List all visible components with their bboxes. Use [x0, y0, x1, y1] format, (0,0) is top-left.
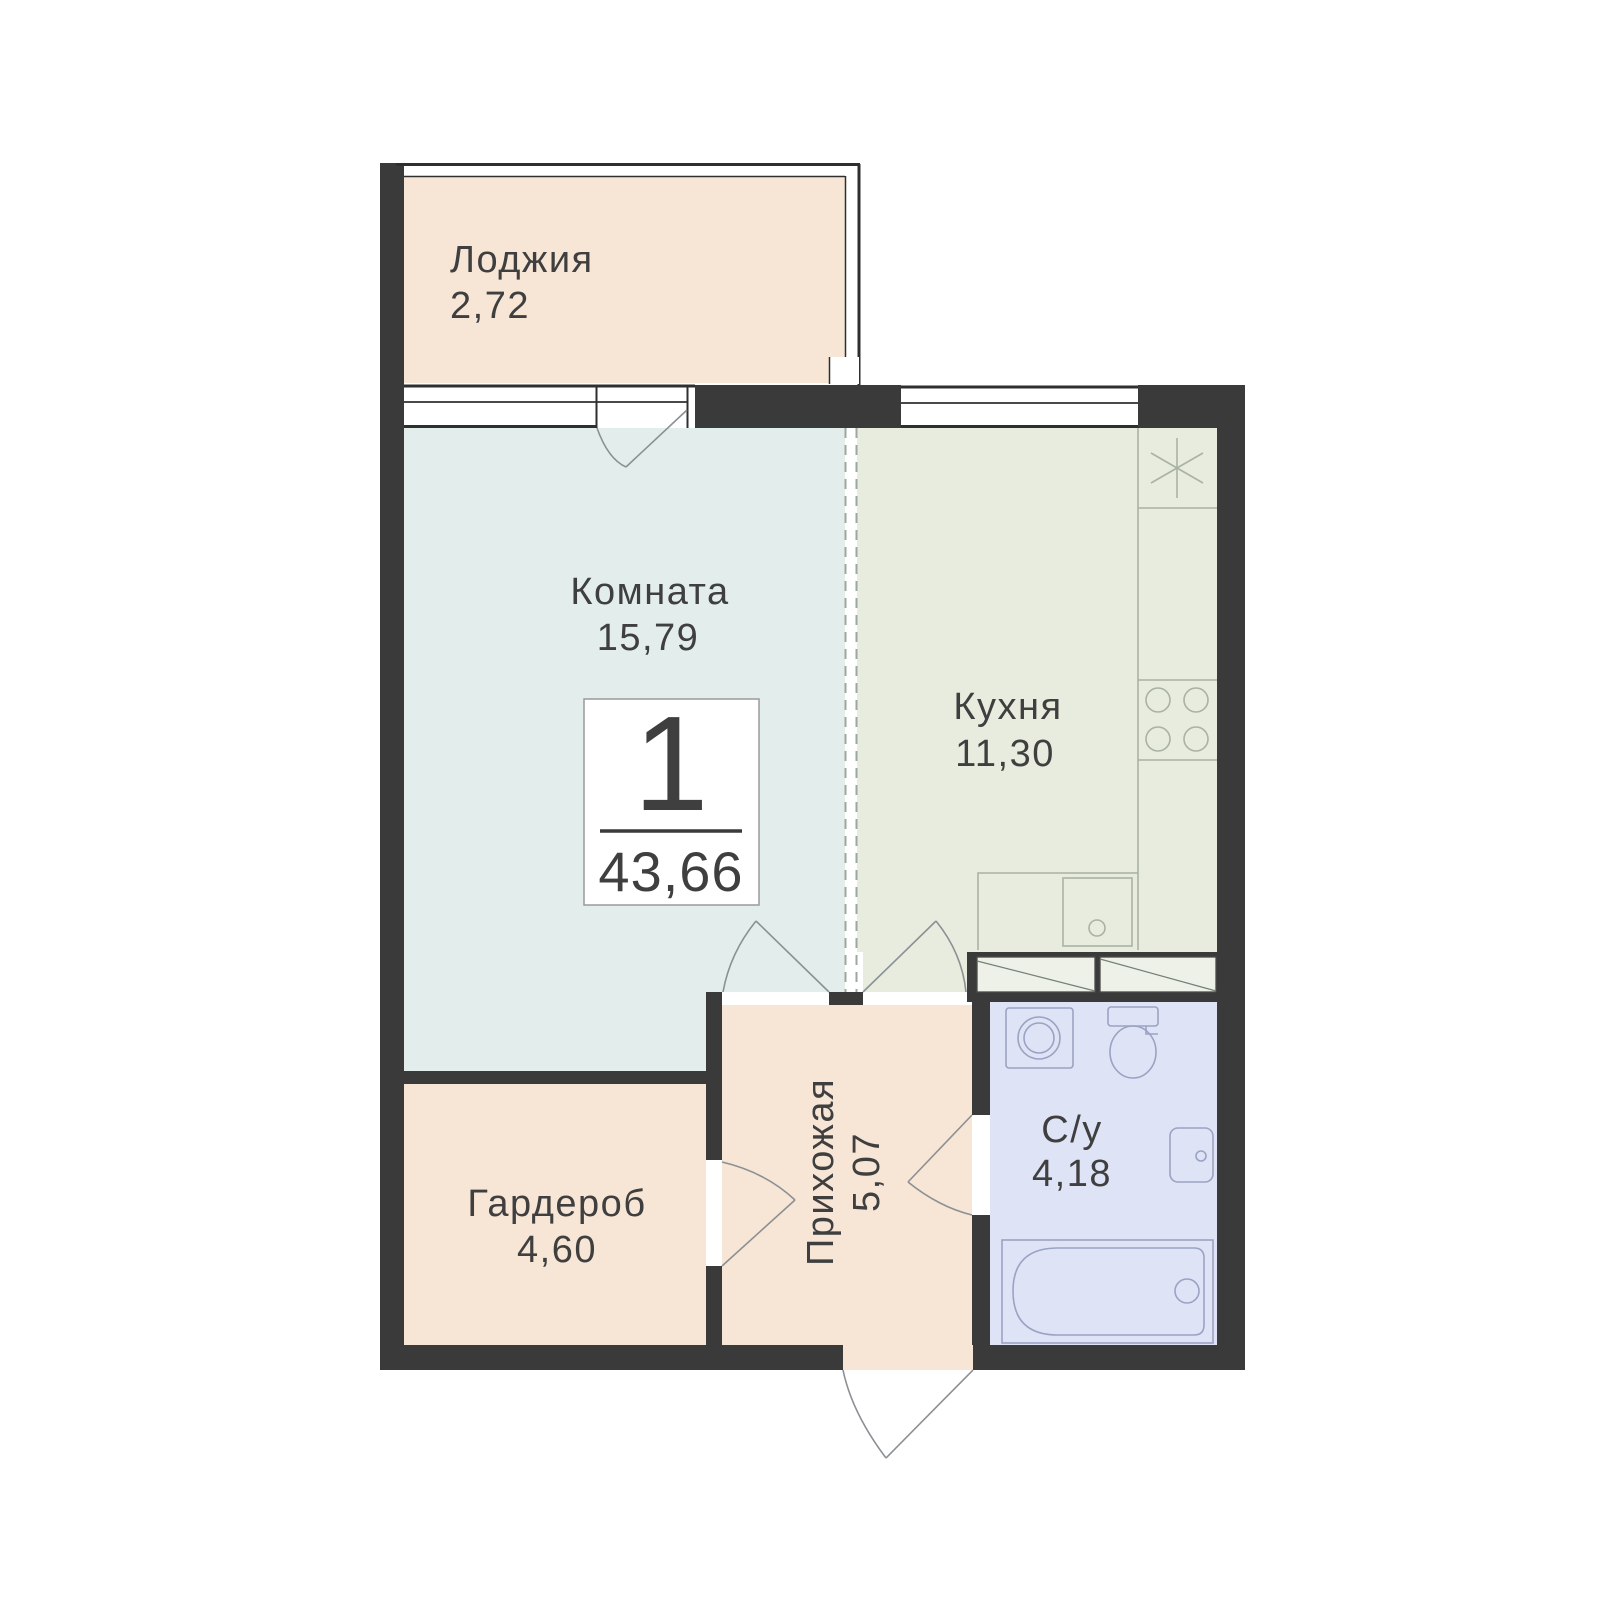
zone-divider-dashed [846, 428, 857, 992]
unit-rooms-count: 1 [633, 688, 708, 839]
bathroom-label: С/у [1041, 1109, 1103, 1151]
wall-room-hall-stub [706, 992, 722, 1084]
wall-wardrobe-hall-lower [706, 1266, 722, 1345]
unit-badge: 1 43,66 [584, 688, 759, 905]
wall-wardrobe-hall-upper [706, 1084, 722, 1160]
hallway-label: Прихожая [800, 1078, 842, 1266]
wall-bottom-left [404, 1345, 843, 1370]
wall-top-room [695, 385, 901, 428]
unit-total-area: 43,66 [598, 840, 743, 903]
wall-bottom-right [973, 1345, 1245, 1370]
floorplan-page: Лоджия 2,72 Комната 15,79 Кухня 11,30 Га… [0, 0, 1620, 1620]
floorplan-svg: Лоджия 2,72 Комната 15,79 Кухня 11,30 Га… [0, 0, 1620, 1620]
wardrobe-label: Гардероб [467, 1183, 646, 1225]
wall-hall-bath-lower [972, 1215, 990, 1345]
wall-hall-block [829, 992, 863, 1005]
kitchen-label: Кухня [953, 686, 1062, 728]
living-room-label: Комната [570, 571, 729, 613]
wardrobe-area-value: 4,60 [517, 1229, 597, 1271]
entry-door-swing [843, 1370, 973, 1458]
loggia-label: Лоджия [450, 239, 594, 281]
wall-left [380, 163, 404, 1370]
wall-room-wardrobe [404, 1071, 722, 1084]
kitchen-area-value: 11,30 [955, 733, 1055, 775]
living-room-area-value: 15,79 [597, 617, 700, 659]
wall-hall-bath-upper [972, 1002, 990, 1115]
wall-right [1217, 385, 1245, 1370]
hallway-area-value: 5,07 [846, 1132, 888, 1212]
wall-top-kitchen [1138, 385, 1245, 428]
bathroom-area-value: 4,18 [1032, 1153, 1112, 1195]
loggia-area-value: 2,72 [450, 285, 530, 327]
loggia-corner-notch [829, 357, 859, 384]
